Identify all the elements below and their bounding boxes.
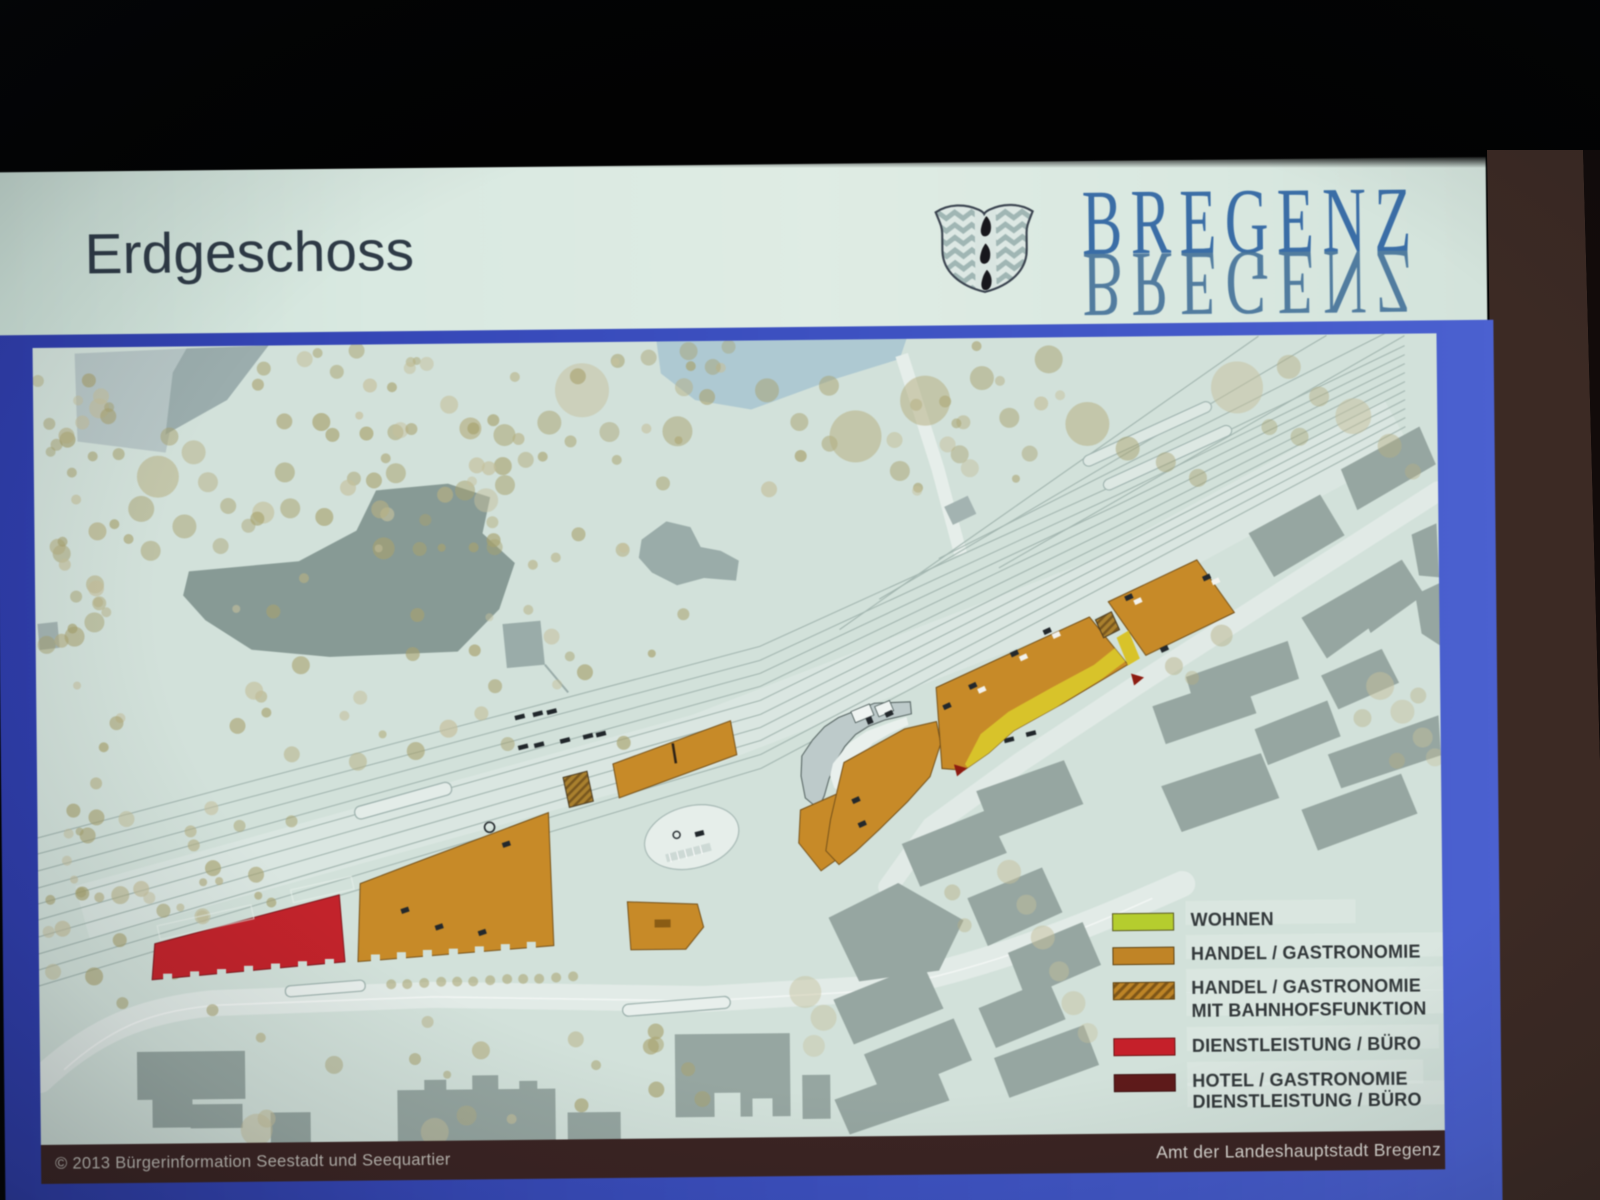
svg-text:WOHNEN: WOHNEN	[1190, 909, 1273, 930]
svg-text:BREGENZ: BREGENZ	[1082, 230, 1421, 323]
svg-text:MIT BAHNHOFSFUNKTION: MIT BAHNHOFSFUNKTION	[1191, 998, 1426, 1020]
svg-text:HOTEL / GASTRONOMIE: HOTEL / GASTRONOMIE	[1192, 1069, 1408, 1091]
svg-text:HANDEL / GASTRONOMIE: HANDEL / GASTRONOMIE	[1191, 976, 1421, 998]
svg-text:DIENSTLEISTUNG / BÜRO: DIENSTLEISTUNG / BÜRO	[1192, 1034, 1421, 1056]
svg-text:DIENSTLEISTUNG / BÜRO: DIENSTLEISTUNG / BÜRO	[1192, 1090, 1421, 1112]
svg-text:HANDEL / GASTRONOMIE: HANDEL / GASTRONOMIE	[1191, 942, 1421, 964]
